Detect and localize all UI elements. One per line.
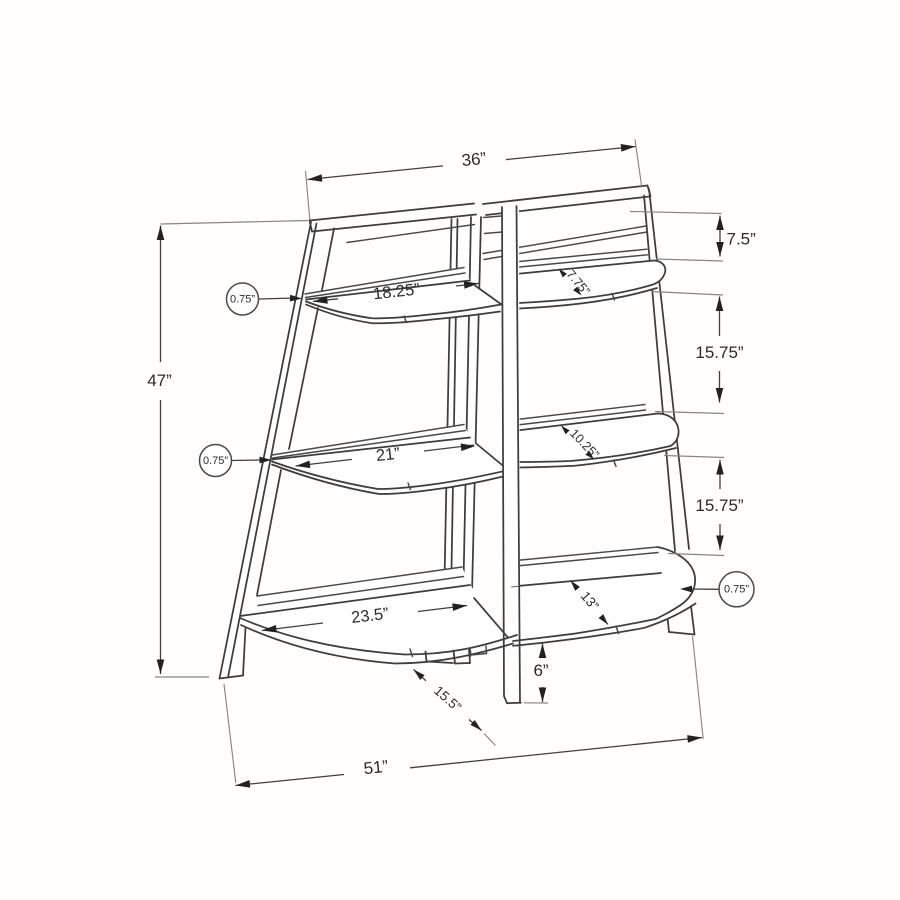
svg-text:0.75”: 0.75” — [230, 293, 255, 305]
svg-text:36”: 36” — [461, 149, 488, 170]
svg-text:51”: 51” — [363, 757, 390, 778]
svg-text:21”: 21” — [375, 445, 401, 466]
svg-text:6”: 6” — [533, 661, 548, 680]
svg-text:7.5”: 7.5” — [727, 229, 757, 248]
svg-text:15.75”: 15.75” — [695, 496, 744, 515]
svg-text:47”: 47” — [147, 371, 172, 390]
svg-text:15.75”: 15.75” — [695, 343, 744, 362]
svg-text:0.75”: 0.75” — [724, 584, 749, 596]
svg-text:0.75”: 0.75” — [203, 455, 228, 467]
